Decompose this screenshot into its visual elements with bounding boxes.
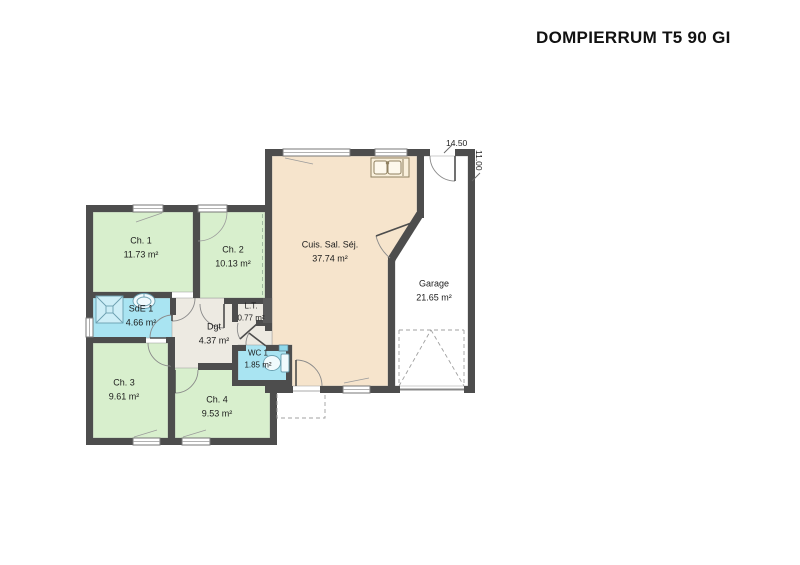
room-ch2-fill xyxy=(200,212,265,298)
dimension-height-label: 11.00 xyxy=(474,150,484,171)
dimension-width-label: 14.50 xyxy=(446,138,467,148)
room-ch1-fill xyxy=(93,212,193,292)
terrace-outline xyxy=(277,394,325,418)
room-ch3-fill xyxy=(93,343,168,438)
kitchen-sink xyxy=(371,158,409,177)
washbasin xyxy=(133,294,155,309)
floorplan-page: DOMPIERRUM T5 90 GI xyxy=(0,0,800,565)
shower xyxy=(96,296,123,323)
floor-plan-drawing xyxy=(0,0,800,565)
